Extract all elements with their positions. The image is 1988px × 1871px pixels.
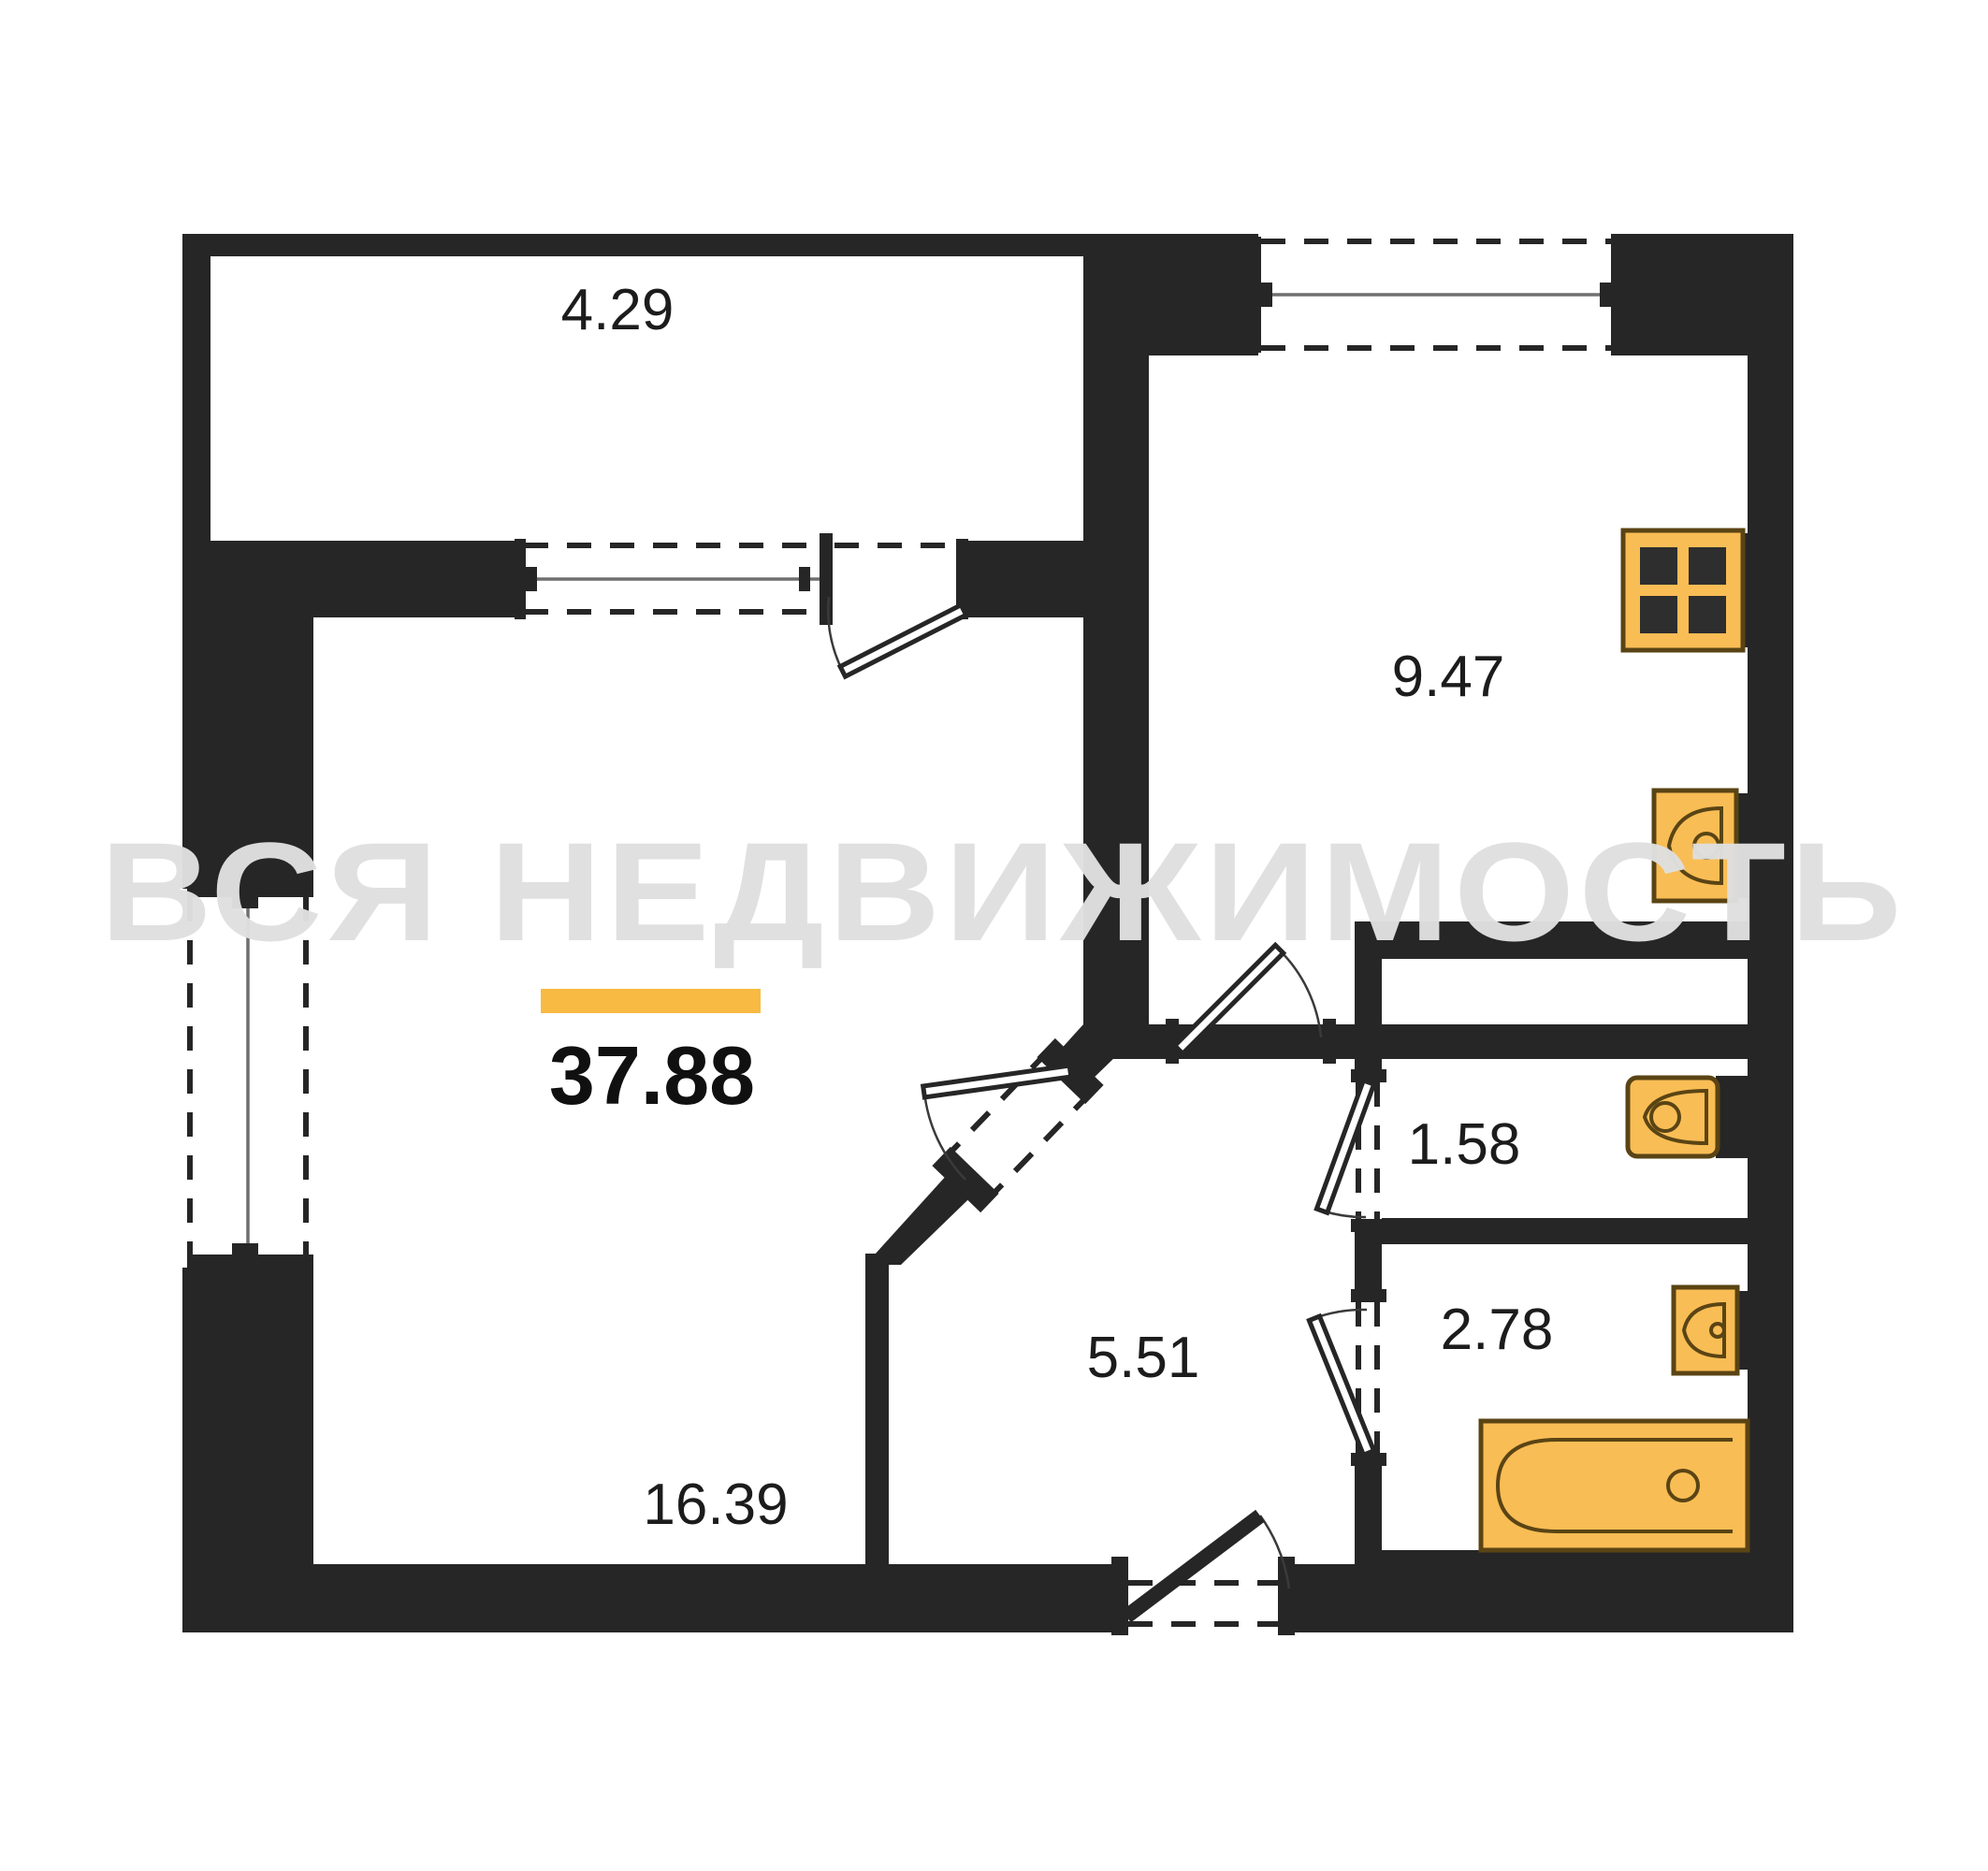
bathroom-door: [1309, 1289, 1386, 1466]
area-label-bathroom: 2.78: [1441, 1298, 1554, 1362]
area-label-living-room: 16.39: [643, 1472, 788, 1537]
entrance-door: [1111, 1510, 1295, 1635]
area-label-hallway: 5.51: [1087, 1326, 1200, 1390]
area-label-wc: 1.58: [1408, 1112, 1521, 1177]
balcony-door: [828, 539, 968, 676]
area-label-balcony: 4.29: [561, 278, 675, 342]
total-area-label: 37.88: [549, 1029, 755, 1122]
watermark-text: ВСЯ НЕДВИЖИМОСТЬ: [100, 813, 1906, 970]
wc-door: [1316, 1069, 1386, 1232]
floor-plan-page: 4.29 9.47 16.39 5.51 1.58 2.78 37.88 ВСЯ…: [0, 0, 1988, 1871]
sink-icon: [1674, 1287, 1748, 1373]
bathtub-icon: [1481, 1421, 1748, 1550]
toilet-icon: [1628, 1076, 1748, 1158]
balcony-window: [515, 533, 833, 625]
total-area-block: 37.88: [541, 989, 761, 1122]
total-area-accent-bar: [541, 989, 761, 1013]
area-label-kitchen: 9.47: [1392, 645, 1505, 709]
stove-icon: [1623, 530, 1748, 650]
top-window: [1247, 237, 1625, 353]
floor-plan: 4.29 9.47 16.39 5.51 1.58 2.78 37.88 ВСЯ…: [0, 0, 1988, 1871]
